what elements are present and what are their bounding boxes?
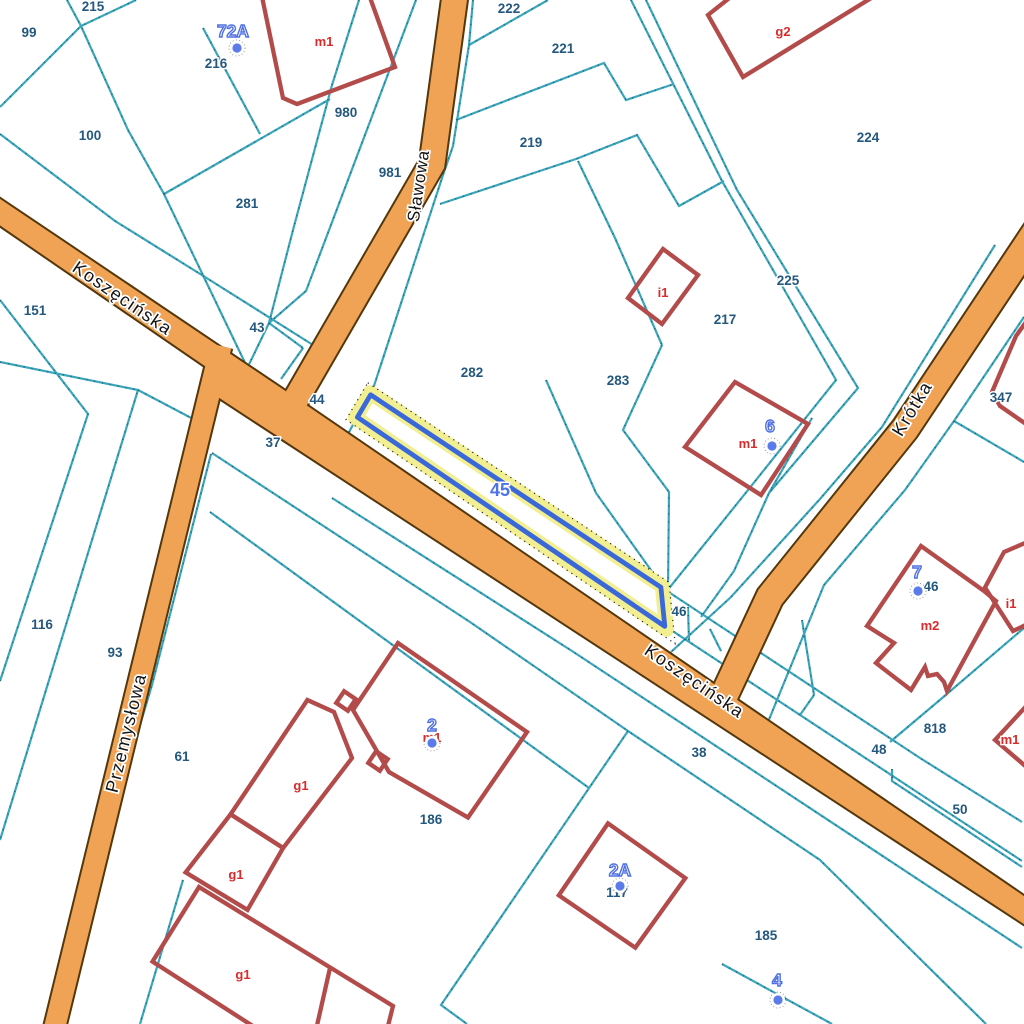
svg-text:221: 221 [552, 41, 575, 56]
svg-text:46: 46 [671, 604, 687, 619]
svg-text:m1: m1 [739, 436, 758, 451]
svg-text:219: 219 [520, 135, 543, 150]
svg-text:116: 116 [31, 617, 53, 632]
svg-text:7: 7 [912, 562, 922, 582]
svg-text:151: 151 [24, 303, 47, 318]
svg-text:282: 282 [461, 365, 484, 380]
svg-text:224: 224 [857, 130, 880, 145]
svg-text:980: 980 [335, 105, 358, 120]
svg-text:100: 100 [79, 128, 102, 143]
svg-text:m2: m2 [921, 618, 940, 633]
svg-text:m1: m1 [315, 34, 334, 49]
svg-text:43: 43 [249, 320, 265, 335]
svg-text:g1: g1 [293, 778, 308, 793]
svg-text:g1: g1 [228, 867, 243, 882]
svg-text:i1: i1 [1006, 596, 1017, 611]
svg-text:186: 186 [420, 812, 443, 827]
svg-text:225: 225 [777, 273, 800, 288]
svg-text:281: 281 [236, 196, 259, 211]
svg-text:50: 50 [952, 802, 967, 817]
svg-text:99: 99 [21, 25, 36, 40]
svg-text:2A: 2A [609, 860, 632, 880]
svg-text:37: 37 [265, 435, 280, 450]
svg-text:g1: g1 [235, 967, 250, 982]
svg-text:2: 2 [427, 715, 437, 735]
svg-text:4: 4 [772, 970, 782, 990]
svg-text:6: 6 [765, 416, 775, 436]
svg-text:981: 981 [379, 165, 402, 180]
svg-text:44: 44 [309, 392, 325, 407]
svg-text:217: 217 [714, 312, 737, 327]
svg-text:215: 215 [82, 0, 105, 14]
svg-text:818: 818 [924, 721, 947, 736]
svg-text:45: 45 [490, 480, 510, 500]
svg-text:93: 93 [107, 645, 123, 660]
svg-text:48: 48 [871, 742, 887, 757]
svg-text:38: 38 [691, 745, 707, 760]
svg-text:222: 222 [498, 1, 521, 16]
svg-text:72A: 72A [217, 21, 249, 41]
svg-text:185: 185 [755, 928, 778, 943]
svg-text:m1: m1 [1001, 732, 1020, 747]
svg-text:216: 216 [205, 56, 228, 71]
svg-text:g2: g2 [775, 24, 790, 39]
svg-text:347: 347 [990, 390, 1013, 405]
svg-text:283: 283 [607, 373, 630, 388]
svg-text:i1: i1 [658, 285, 669, 300]
svg-text:61: 61 [174, 749, 190, 764]
